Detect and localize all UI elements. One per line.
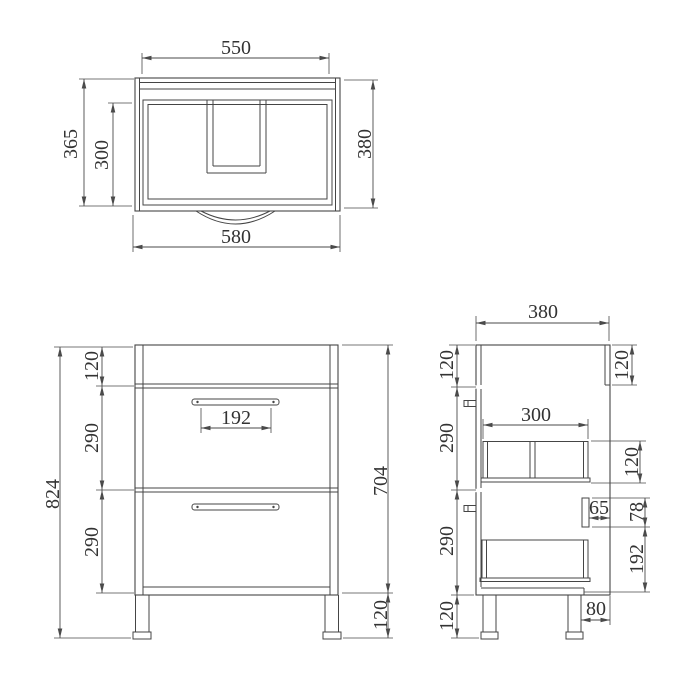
dim-label-365: 365 [60,129,82,159]
dim-label-290-lower: 290 [81,527,103,557]
dim-label-120-back-rail: 120 [611,350,633,380]
dim-label-704: 704 [370,466,392,496]
dim-label-300-drawer: 300 [521,404,551,426]
dim-label-380-plan: 380 [354,129,376,159]
dim-label-290-side-upper: 290 [436,423,458,453]
dim-label-120-side-leg: 120 [436,601,458,631]
dim-label-290-side-lower: 290 [436,526,458,556]
dim-label-120-side-top: 120 [436,350,458,380]
dim-label-120-leg: 120 [370,600,392,630]
dim-label-80: 80 [586,598,606,620]
dim-label-120-drawer-box: 120 [621,447,643,477]
dim-label-120-top: 120 [81,351,103,381]
dim-label-380-side: 380 [528,301,558,323]
dim-label-824: 824 [42,479,64,509]
dim-label-580: 580 [221,226,251,248]
dim-label-290-upper: 290 [81,423,103,453]
vanity-technical-drawing: 550 580 365 300 380 [0,0,700,700]
dim-label-192: 192 [221,407,251,429]
dim-label-78: 78 [626,502,648,522]
dim-label-550: 550 [221,37,251,59]
dim-label-65: 65 [589,497,609,519]
dim-label-300: 300 [91,140,113,170]
dim-label-192-side: 192 [626,544,648,574]
